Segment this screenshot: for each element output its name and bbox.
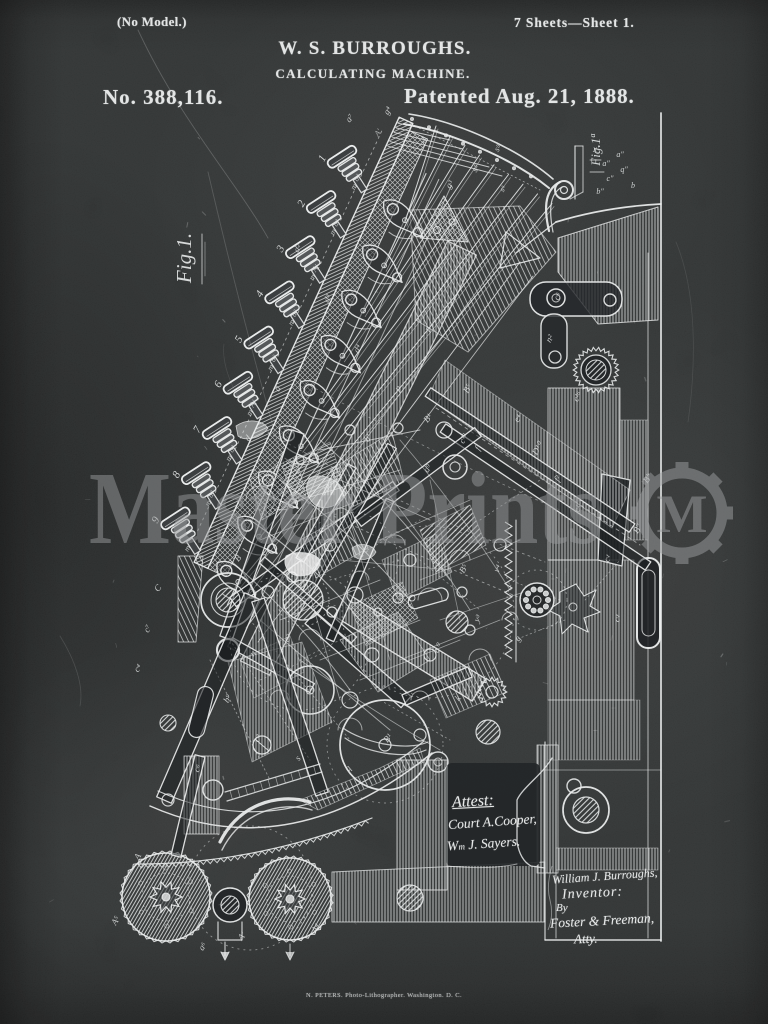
svg-text:Master Prints: Master Prints <box>89 451 601 566</box>
svg-text:M: M <box>657 484 708 544</box>
